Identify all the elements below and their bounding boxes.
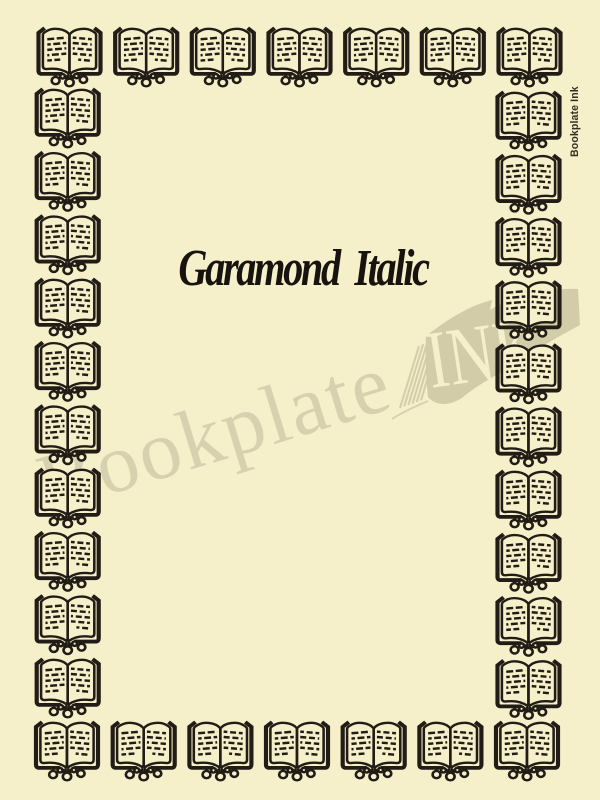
svg-text:Garamond Italic: Garamond Italic xyxy=(178,240,429,297)
svg-text:Bookplate Ink: Bookplate Ink xyxy=(569,86,581,157)
